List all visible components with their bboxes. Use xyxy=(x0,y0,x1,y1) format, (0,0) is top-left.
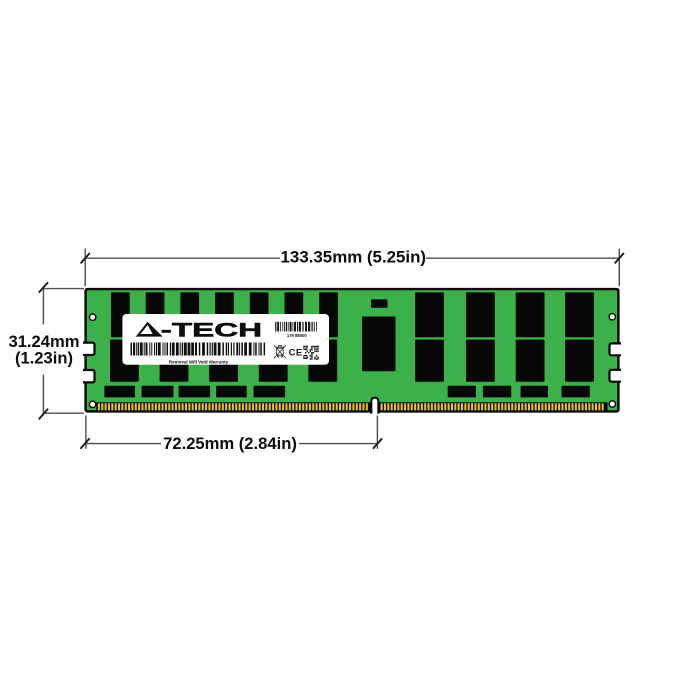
svg-text:-TECH: -TECH xyxy=(161,319,262,341)
svg-text:133.35mm (5.25in): 133.35mm (5.25in) xyxy=(281,247,427,266)
svg-text:(1.23in): (1.23in) xyxy=(15,349,73,368)
svg-text:179 88000: 179 88000 xyxy=(287,333,307,338)
svg-text:Removal Will Void Warranty: Removal Will Void Warranty xyxy=(169,359,229,364)
svg-text:CE: CE xyxy=(289,347,303,358)
svg-text:72.25mm (2.84in): 72.25mm (2.84in) xyxy=(163,434,297,453)
